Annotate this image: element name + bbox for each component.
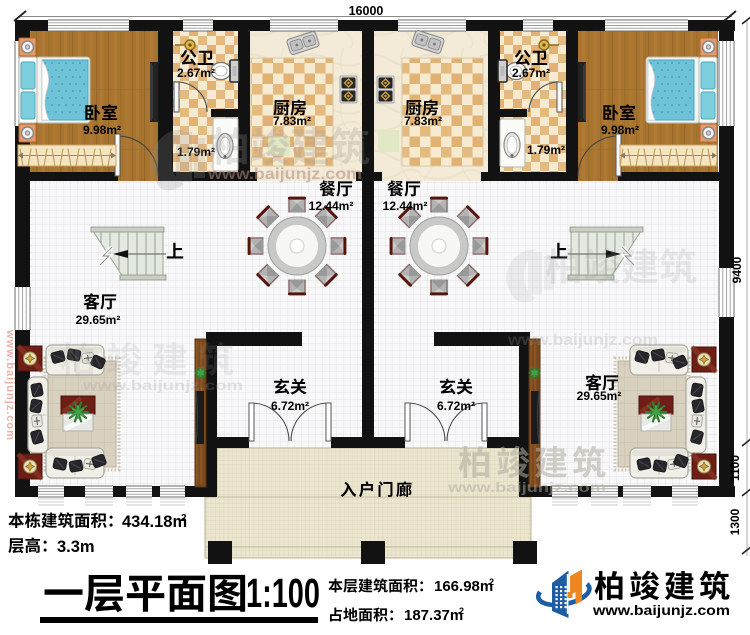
svg-text:2.67m²: 2.67m² bbox=[177, 66, 215, 80]
svg-text:7.83m²: 7.83m² bbox=[404, 114, 442, 128]
svg-text:2.67m²: 2.67m² bbox=[512, 66, 550, 80]
svg-text:2: 2 bbox=[459, 606, 464, 616]
svg-text:3.3m: 3.3m bbox=[57, 538, 95, 556]
svg-text:www.baijunjz.com: www.baijunjz.com bbox=[207, 166, 362, 183]
svg-text:1:100: 1:100 bbox=[246, 570, 320, 616]
svg-text:6.72m²: 6.72m² bbox=[437, 399, 475, 413]
svg-text:2: 2 bbox=[181, 513, 187, 524]
svg-text:www.baijunjz.com: www.baijunjz.com bbox=[507, 332, 658, 349]
svg-text:1.79m²: 1.79m² bbox=[527, 143, 565, 157]
svg-text:2: 2 bbox=[489, 577, 494, 587]
svg-text:187.37m: 187.37m bbox=[404, 607, 463, 624]
svg-text:1100: 1100 bbox=[728, 455, 742, 481]
svg-text:www.baijunjz.com: www.baijunjz.com bbox=[4, 329, 16, 441]
svg-text:29.65m²: 29.65m² bbox=[577, 389, 622, 403]
svg-text:1300: 1300 bbox=[728, 508, 742, 535]
svg-text:12.44m²: 12.44m² bbox=[309, 199, 354, 213]
svg-text:www.baijunjz.com: www.baijunjz.com bbox=[82, 377, 243, 393]
svg-text:166.98m: 166.98m bbox=[434, 578, 493, 595]
svg-text:9400: 9400 bbox=[730, 256, 744, 283]
svg-text:434.18m: 434.18m bbox=[122, 513, 187, 531]
svg-text:6.72m²: 6.72m² bbox=[271, 399, 309, 413]
svg-text:29.65m²: 29.65m² bbox=[76, 313, 121, 327]
svg-text:www.baijunjz.com: www.baijunjz.com bbox=[447, 479, 606, 495]
svg-text:7.83m²: 7.83m² bbox=[273, 114, 311, 128]
svg-text:9.98m²: 9.98m² bbox=[601, 123, 639, 137]
svg-text:9.98m²: 9.98m² bbox=[83, 123, 121, 137]
svg-text:16000: 16000 bbox=[349, 4, 384, 18]
svg-text:12.44m²: 12.44m² bbox=[383, 199, 428, 213]
svg-text:www.baijunjz.com: www.baijunjz.com bbox=[592, 603, 730, 618]
